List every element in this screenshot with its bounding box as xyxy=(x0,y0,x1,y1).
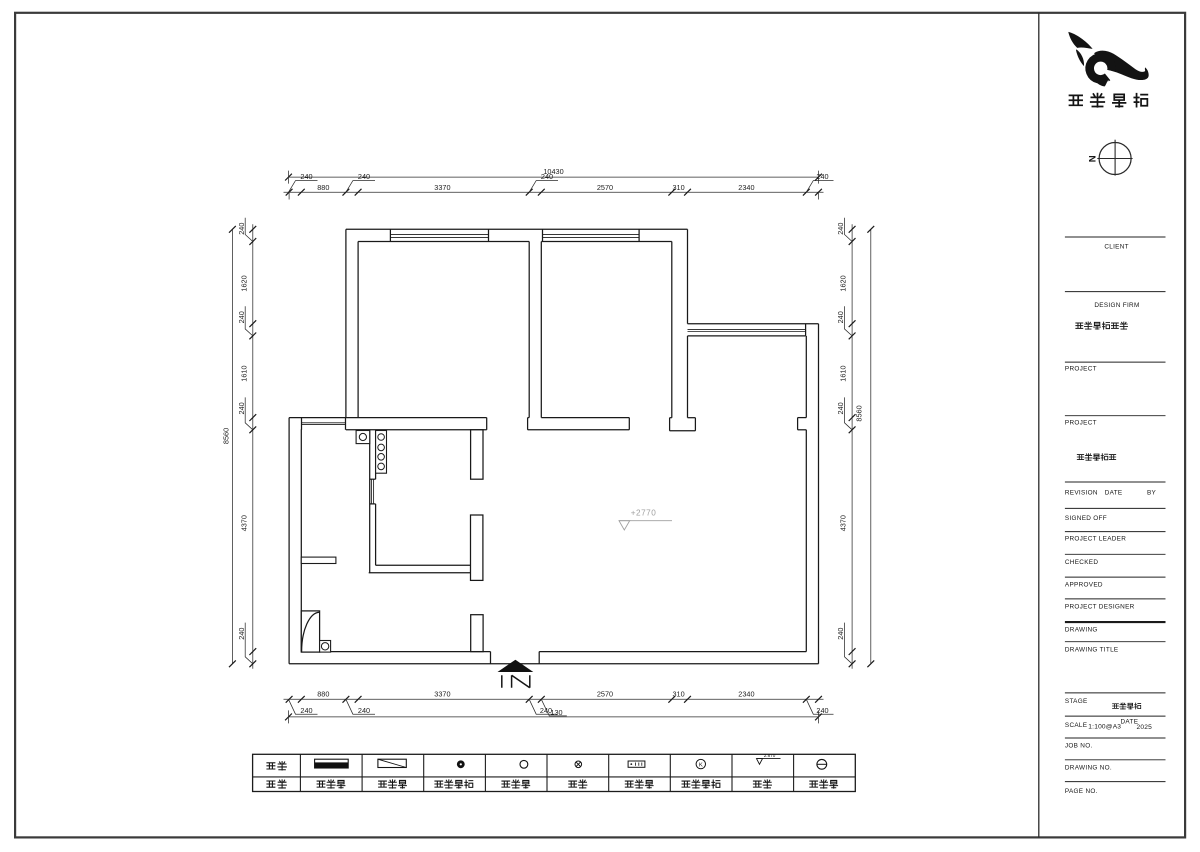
svg-text:1620: 1620 xyxy=(839,275,848,291)
svg-text:DESIGN FIRM: DESIGN FIRM xyxy=(1094,302,1139,309)
svg-text:880: 880 xyxy=(317,690,329,699)
svg-text:SCALE: SCALE xyxy=(1065,722,1087,729)
svg-text:2340: 2340 xyxy=(738,690,754,699)
svg-text:DATE: DATE xyxy=(1105,490,1123,497)
svg-text:PAGE NO.: PAGE NO. xyxy=(1065,788,1098,795)
svg-text:4370: 4370 xyxy=(239,515,248,531)
svg-text:1610: 1610 xyxy=(839,365,848,381)
svg-text:240: 240 xyxy=(237,311,246,323)
svg-text:BY: BY xyxy=(1147,490,1157,497)
svg-text:240: 240 xyxy=(836,402,845,414)
svg-text:JOB NO.: JOB NO. xyxy=(1065,742,1093,749)
svg-text:310: 310 xyxy=(673,183,685,192)
svg-text:240: 240 xyxy=(300,706,312,715)
svg-text:2025: 2025 xyxy=(1137,724,1153,731)
svg-text:240: 240 xyxy=(237,628,246,640)
svg-text:2570: 2570 xyxy=(597,183,613,192)
svg-text:DRAWING TITLE: DRAWING TITLE xyxy=(1065,646,1119,653)
svg-text:2340: 2340 xyxy=(738,183,754,192)
svg-text:1610: 1610 xyxy=(239,365,248,381)
svg-text:1620: 1620 xyxy=(239,275,248,291)
svg-text:CHECKED: CHECKED xyxy=(1065,559,1098,566)
svg-text:8560: 8560 xyxy=(222,428,231,444)
svg-text:240: 240 xyxy=(816,172,828,181)
svg-text:STAGE: STAGE xyxy=(1065,698,1088,705)
svg-text:CLIENT: CLIENT xyxy=(1104,243,1129,250)
svg-text:2570: 2570 xyxy=(597,690,613,699)
svg-text:240: 240 xyxy=(237,402,246,414)
svg-text:8560: 8560 xyxy=(855,405,864,421)
svg-text:PROJECT LEADER: PROJECT LEADER xyxy=(1065,535,1126,542)
svg-text:240: 240 xyxy=(836,628,845,640)
svg-text:4370: 4370 xyxy=(839,515,848,531)
svg-text:SIGNED OFF: SIGNED OFF xyxy=(1065,515,1107,522)
svg-text:1:100@A3: 1:100@A3 xyxy=(1088,723,1121,730)
svg-text:PROJECT: PROJECT xyxy=(1065,365,1097,372)
svg-text:+2770: +2770 xyxy=(631,509,657,518)
svg-text:DRAWING: DRAWING xyxy=(1065,626,1098,633)
svg-text:PROJECT DESIGNER: PROJECT DESIGNER xyxy=(1065,604,1135,611)
svg-text:240: 240 xyxy=(358,172,370,181)
svg-text:240: 240 xyxy=(836,223,845,235)
svg-text:240: 240 xyxy=(836,311,845,323)
svg-text:N: N xyxy=(1088,155,1099,162)
svg-text:REVISION: REVISION xyxy=(1065,490,1098,497)
svg-text:3370: 3370 xyxy=(434,183,450,192)
svg-text:3370: 3370 xyxy=(434,690,450,699)
svg-text:240: 240 xyxy=(237,223,246,235)
svg-text:DRAWING NO.: DRAWING NO. xyxy=(1065,764,1112,771)
svg-text:880: 880 xyxy=(317,183,329,192)
svg-text:310: 310 xyxy=(673,690,685,699)
svg-text:2.870: 2.870 xyxy=(764,753,776,758)
svg-text:240: 240 xyxy=(300,172,312,181)
svg-text:240: 240 xyxy=(358,706,370,715)
svg-text:PROJECT: PROJECT xyxy=(1065,419,1097,426)
svg-text:K: K xyxy=(699,763,703,769)
svg-text:130: 130 xyxy=(550,708,562,717)
svg-text:APPROVED: APPROVED xyxy=(1065,582,1103,589)
svg-text:240: 240 xyxy=(541,172,553,181)
